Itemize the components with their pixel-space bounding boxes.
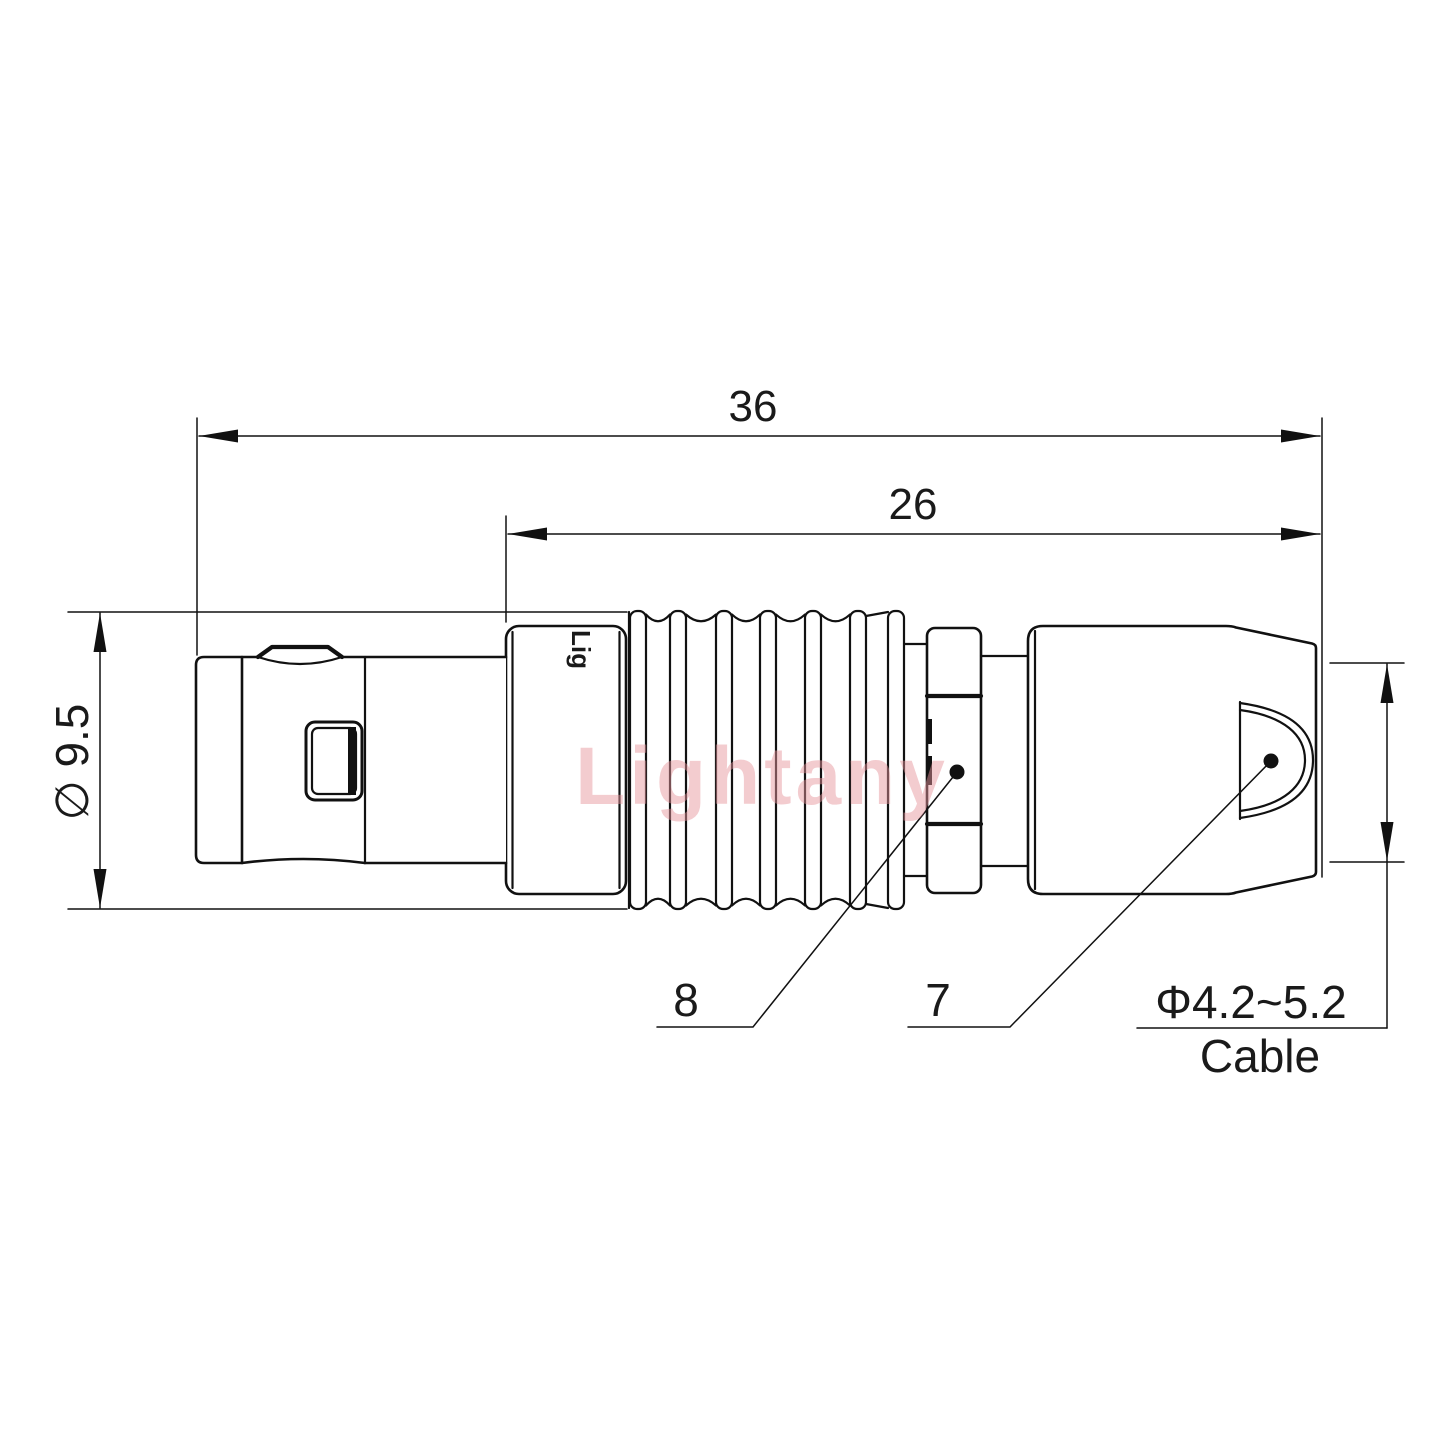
- alignment-key-bump: [258, 647, 342, 657]
- watermark-text: Lightany: [575, 731, 949, 822]
- arrowhead-cable-top: [1381, 664, 1394, 703]
- callout-7-label: 7: [925, 974, 951, 1026]
- arrowhead-36-left: [199, 430, 238, 443]
- dimension-rear-26: 26: [506, 480, 1320, 622]
- front-plug-fill: [242, 657, 506, 863]
- connector-dimension-drawing: 36 26 ∅ 9.5 Lig: [0, 0, 1440, 1440]
- arrowhead-cable-bottom: [1381, 822, 1394, 861]
- dim-overall-length-value: 36: [729, 382, 778, 431]
- dim-rear-length-value: 26: [889, 480, 938, 529]
- leader-dot-8: [950, 765, 965, 780]
- brand-engraving-text: Lig: [566, 630, 596, 669]
- arrowhead-26-right: [1281, 528, 1320, 541]
- technical-drawing-page: 36 26 ∅ 9.5 Lig: [0, 0, 1440, 1440]
- front-plug: [196, 647, 506, 863]
- arrowhead-36-right: [1281, 430, 1320, 443]
- neck-edges: [981, 656, 1028, 866]
- dim-diameter-value: ∅ 9.5: [46, 704, 98, 821]
- arrowhead-diameter-bottom: [94, 869, 107, 908]
- front-ferrule-cap: [196, 657, 242, 863]
- cable-word-label: Cable: [1200, 1030, 1320, 1082]
- callout-8-label: 8: [673, 974, 699, 1026]
- arrowhead-26-left: [508, 528, 547, 541]
- key-window-shadow-bar: [348, 727, 356, 795]
- cable-diameter-value: Φ4.2~5.2: [1155, 976, 1346, 1028]
- arrowhead-diameter-top: [94, 613, 107, 652]
- leader-dot-7: [1264, 754, 1279, 769]
